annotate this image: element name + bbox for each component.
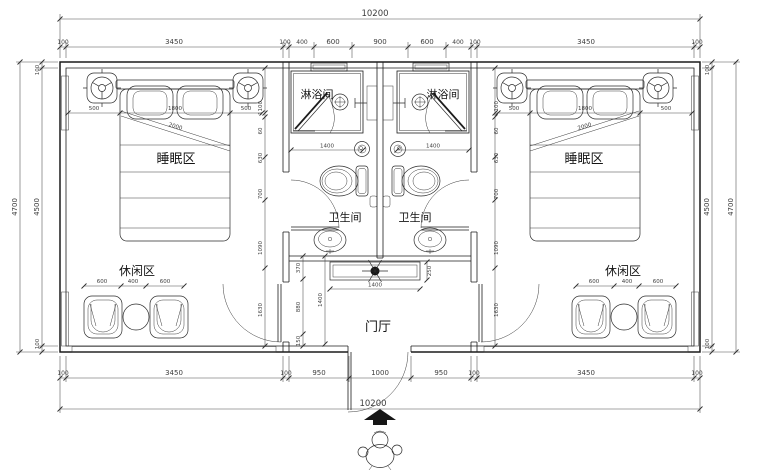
room-label-foyer: 门厅 — [365, 320, 391, 335]
room-label-sleeping-left: 睡眠区 — [156, 152, 195, 167]
dim-text: 1090 — [494, 241, 500, 255]
dim-text: 1630 — [494, 303, 500, 317]
dim-text: 400 — [128, 279, 139, 285]
dim-text: 600 — [326, 38, 339, 46]
toilet-icon — [320, 166, 368, 196]
dim-text: 900 — [373, 38, 386, 46]
room-door-right — [479, 284, 539, 342]
wall-fixture — [383, 196, 390, 207]
dim-text: 1800 — [168, 106, 182, 112]
dim-text: 100 — [691, 39, 703, 46]
window-right-top — [692, 76, 699, 130]
dim-text: 3450 — [165, 369, 183, 377]
dim-console-width: 1400 — [328, 283, 423, 292]
partition-wall-left — [283, 62, 289, 352]
shower-head-icon — [355, 98, 367, 108]
dim-text: 3450 — [165, 38, 183, 46]
dim-text: 100 — [279, 39, 291, 46]
window-bottom-left-room — [72, 347, 276, 353]
plumbing-chase-right — [383, 86, 393, 120]
dim-text: 60 — [258, 127, 264, 134]
dim-chain-left: 1100 60 630 700 1090 1630 — [258, 66, 268, 349]
dim-text: 60 — [494, 127, 500, 134]
dim-chain-right: 1100 60 630 700 1090 1630 — [493, 66, 501, 349]
floor-plan-drawing: 睡眠区 休闲区 — [0, 0, 760, 473]
walls — [60, 62, 700, 352]
outer-wall-inner-line — [66, 68, 694, 346]
dim-text: 100 — [705, 338, 711, 349]
left-room: 睡眠区 休闲区 — [83, 69, 281, 342]
dim-text: 1400 — [320, 144, 334, 150]
dim-bottom-row: 100 3450 100 950 1000 950 100 3450 100 — [57, 356, 703, 382]
dim-text: 1630 — [258, 303, 264, 317]
dim-text: 600 — [653, 279, 664, 285]
dim-text: 1800 — [578, 106, 592, 112]
dim-text: 100 — [35, 64, 41, 75]
dim-text: 700 — [258, 188, 264, 199]
partition-wall-right — [471, 62, 477, 352]
plumbing-chase-left — [367, 86, 377, 120]
dim-text: 1090 — [258, 241, 264, 255]
room-label-wc-left: 卫生间 — [329, 210, 362, 224]
dim-text: 400 — [296, 39, 308, 46]
dim-text: 950 — [434, 369, 447, 377]
dim-text: 4700 — [727, 198, 735, 216]
dim-text: 500 — [241, 106, 252, 112]
dim-console-depth: 250 — [425, 260, 434, 283]
dim-text: 370 — [296, 262, 302, 273]
dim-text: 600 — [589, 279, 600, 285]
wall-vent-right — [413, 63, 449, 71]
dim-shower-right: 1400 — [395, 144, 472, 153]
dim-text: 2000 — [168, 122, 184, 132]
dim-text: 3450 — [577, 38, 595, 46]
dim-text: 500 — [509, 106, 520, 112]
dim-text: 100 — [280, 370, 292, 377]
window-bottom-right-room — [484, 347, 688, 353]
floor-drain-icon — [332, 94, 348, 110]
paper-holder-icon — [355, 142, 370, 157]
dim-text: 630 — [494, 152, 500, 163]
dim-text: 600 — [97, 279, 108, 285]
sink-icon — [414, 228, 446, 254]
lounge-chair — [84, 296, 122, 338]
window-right-bottom — [692, 292, 699, 346]
outer-wall — [60, 62, 700, 352]
dim-text: 4700 — [11, 198, 19, 216]
floor-plan-canvas: 睡眠区 休闲区 — [0, 0, 760, 473]
room-door-left — [223, 284, 281, 342]
dim-text: 100 — [469, 39, 481, 46]
entry-marker — [358, 409, 402, 470]
room-label-leisure-right: 休闲区 — [605, 264, 641, 278]
entry-arrow-icon — [364, 409, 396, 425]
room-label-shower-left: 淋浴间 — [301, 88, 334, 101]
ceiling-light-icon — [639, 69, 677, 107]
toilet-icon — [392, 166, 440, 196]
wall-fixture — [370, 196, 377, 207]
dim-text: 100 — [35, 338, 41, 349]
lounge-chair — [150, 296, 188, 338]
room-label-sleeping-right: 睡眠区 — [564, 152, 603, 167]
ceiling-light-icon — [83, 69, 121, 107]
entrance-jambs — [348, 346, 411, 352]
side-table — [123, 304, 149, 330]
dim-text: 100 — [468, 370, 480, 377]
dim-text: 1400 — [426, 144, 440, 150]
dim-text: 10200 — [361, 9, 388, 19]
dim-text: 700 — [494, 188, 500, 199]
dim-text: 500 — [89, 106, 100, 112]
shower-room-right — [393, 71, 469, 133]
dim-text: 3450 — [577, 369, 595, 377]
dim-text: 100 — [57, 370, 69, 377]
ceiling-fan-icon — [362, 260, 388, 282]
room-label-wc-right: 卫生间 — [399, 210, 432, 224]
dim-text: 1400 — [318, 293, 324, 307]
bathroom-foyer-wall — [289, 256, 471, 261]
dim-text: 2000 — [577, 122, 593, 132]
dim-text: 600 — [420, 38, 433, 46]
dim-foyer-chain: 370 880 150 — [296, 254, 306, 349]
dim-text: 400 — [452, 39, 464, 46]
dim-foyer-depth: 1400 — [318, 254, 328, 347]
dim-text: 630 — [258, 152, 264, 163]
dim-text: 880 — [296, 301, 302, 312]
dim-text: 500 — [661, 106, 672, 112]
center-core: 淋浴间 淋浴间 卫生间 卫生间 门厅 — [291, 63, 469, 412]
dim-leisure-right: 600 400 600 — [574, 279, 679, 289]
dim-text: 1100 — [258, 101, 264, 115]
person-figure-icon — [358, 431, 402, 470]
dim-leisure-left: 600 400 600 — [82, 279, 187, 289]
dim-text: 4500 — [33, 198, 41, 216]
dim-bottom-overall: 10200 — [58, 356, 703, 413]
dim-text: 1100 — [494, 101, 500, 115]
dim-text: 1000 — [371, 369, 389, 377]
dim-text: 950 — [312, 369, 325, 377]
dim-top-overall: 10200 — [58, 9, 703, 58]
dim-left-side: 100 4500 100 4700 — [11, 60, 58, 355]
dim-shower-left: 1400 — [289, 144, 366, 153]
lounge-chair — [638, 296, 676, 338]
dim-text: 250 — [427, 265, 433, 276]
dim-text: 150 — [296, 335, 302, 346]
dim-text: 600 — [160, 279, 171, 285]
dim-text: 1400 — [368, 283, 382, 289]
sink-icon — [314, 228, 346, 254]
dim-text: 4500 — [703, 198, 711, 216]
dim-text: 10200 — [359, 399, 386, 409]
side-table — [611, 304, 637, 330]
dim-text: 100 — [705, 64, 711, 75]
lounge-chair — [572, 296, 610, 338]
dim-text: 100 — [57, 39, 69, 46]
shower-head-icon — [393, 98, 405, 108]
room-label-shower-right: 淋浴间 — [427, 88, 460, 101]
shower-room-left — [291, 71, 367, 133]
dim-right-side: 100 4500 100 4700 — [702, 60, 740, 355]
center-partition-wall — [377, 62, 383, 258]
console-cabinet — [330, 260, 420, 282]
dim-text: 400 — [622, 279, 633, 285]
room-label-leisure-left: 休闲区 — [119, 264, 155, 278]
dim-text: 100 — [691, 370, 703, 377]
window-left-bottom — [62, 292, 69, 346]
dim-top-row: 100 3450 100 400 600 900 600 400 100 345… — [57, 38, 703, 58]
window-left-top — [62, 76, 69, 130]
wall-vent-left — [311, 63, 347, 71]
